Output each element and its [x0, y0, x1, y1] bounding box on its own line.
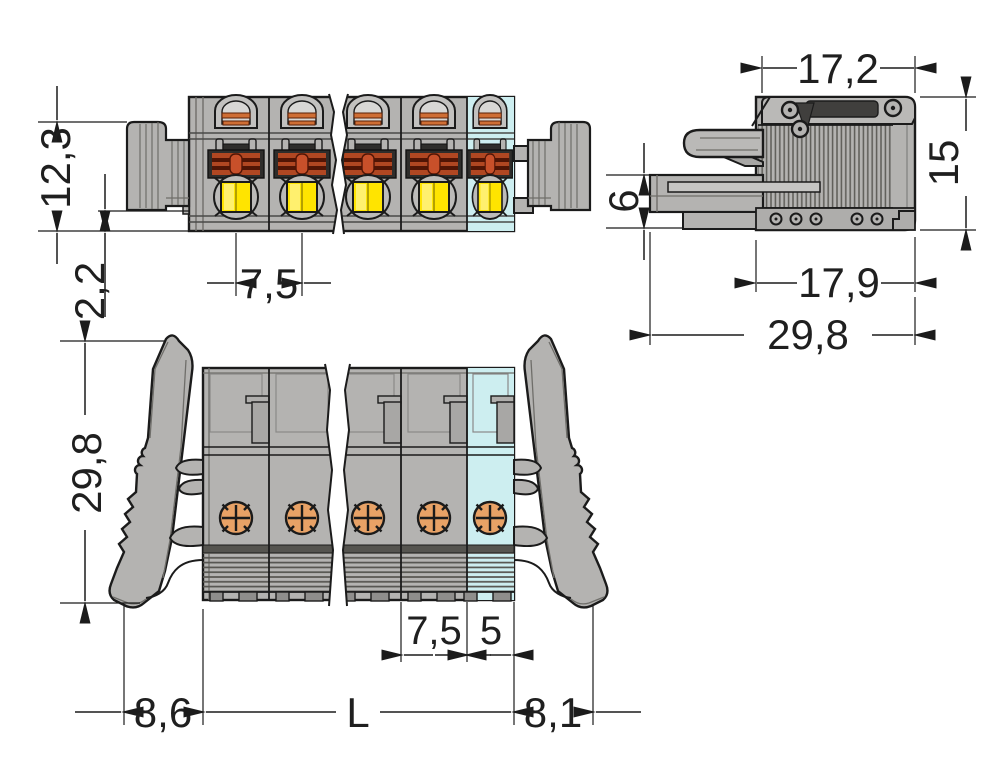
- pole-cell: [340, 95, 396, 219]
- front-view-left-lever: [110, 335, 203, 607]
- dim-front-end-module-label: 5: [480, 609, 502, 653]
- dim-front-total-length: L: [206, 689, 511, 736]
- dim-side-top-width-label: 17,2: [797, 45, 879, 92]
- dim-side-body-width-label: 17,9: [798, 259, 880, 306]
- dim-side-height: 15: [920, 97, 976, 230]
- top-view-right-latch: [528, 122, 590, 210]
- dim-front-total-length-label: L: [346, 689, 369, 736]
- side-view-bottom-strip: [756, 208, 915, 230]
- dim-front-pitch-label: 7,5: [406, 609, 462, 653]
- connector-technical-drawing: 12,3 2,2 7,5: [0, 0, 1000, 779]
- dim-front-end-module: 5: [470, 602, 514, 725]
- front-view: 29,8 7,5 5 8,6 L: [60, 335, 641, 736]
- dim-front-right-offset-label: 8,1: [524, 689, 582, 736]
- dim-side-shroud-height-label: 6: [600, 189, 647, 212]
- dim-top-height-label: 12,3: [32, 127, 79, 209]
- dim-front-right-offset: 8,1: [524, 606, 641, 736]
- dim-front-left-offset-label: 8,6: [134, 689, 192, 736]
- dim-side-body-width: 17,9: [756, 237, 915, 306]
- side-view-latch-beak: [684, 130, 763, 166]
- top-view: 12,3 2,2 7,5: [32, 86, 590, 320]
- dim-top-base-height-label: 2,2: [66, 262, 113, 320]
- dim-top-pitch-label: 7,5: [240, 260, 298, 307]
- pole-cell: [208, 95, 264, 219]
- side-view: 17,2 6 15 17,9: [600, 45, 976, 358]
- contact-pin: [668, 182, 820, 192]
- dim-front-total-height-label: 29,8: [63, 432, 110, 514]
- dim-side-top-width: 17,2: [762, 45, 915, 93]
- dim-side-total-depth-label: 29,8: [767, 311, 849, 358]
- pole-cell: [406, 95, 462, 219]
- front-view-right-lever: [514, 335, 607, 607]
- pole-cell-highlighted: [468, 95, 513, 219]
- dim-top-pitch: 7,5: [207, 233, 331, 307]
- pole-cell: [274, 95, 330, 219]
- top-view-left-latch: [127, 122, 189, 210]
- dim-front-left-offset: 8,6: [75, 606, 203, 736]
- dim-side-height-label: 15: [920, 140, 967, 187]
- technical-drawing-page: 12,3 2,2 7,5: [0, 0, 1000, 779]
- dim-front-pitch: 7,5: [401, 602, 467, 662]
